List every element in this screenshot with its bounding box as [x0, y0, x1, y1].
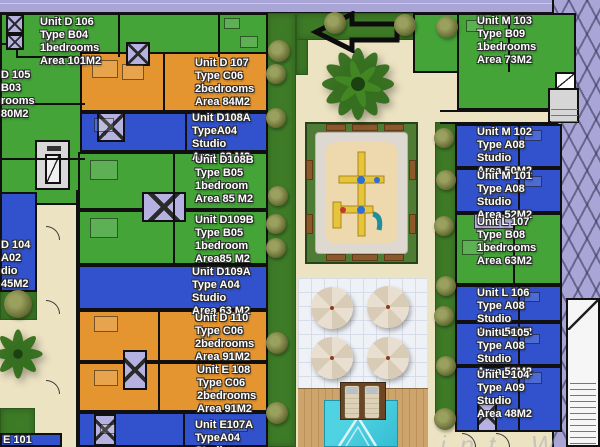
lounger-icon — [364, 385, 380, 419]
palm-tree-icon — [320, 46, 396, 122]
bush-icon — [266, 402, 288, 424]
unit-label-d106: Unit D 106Type B041bedroomsArea 101M2 — [40, 16, 101, 68]
stair-treads — [570, 378, 596, 444]
door-arc — [46, 380, 60, 394]
elevator-shaft-icon — [126, 42, 150, 66]
furniture — [90, 218, 118, 238]
bush-icon — [268, 186, 288, 206]
bush-icon — [436, 276, 456, 296]
bench — [409, 214, 416, 234]
bench — [384, 124, 404, 131]
wall — [218, 13, 220, 57]
left-arrow-icon — [310, 11, 402, 53]
bush-icon — [394, 14, 416, 36]
elevator-shaft-icon — [123, 350, 147, 390]
unit-label-m101: Unit M 101Type A08StudioArea 52M2 — [477, 170, 532, 222]
furniture — [240, 36, 258, 48]
palm-tree-icon — [0, 328, 44, 380]
bush-icon — [324, 12, 346, 34]
door-arc — [46, 300, 60, 314]
lounger-icon — [344, 385, 360, 419]
stair-diagonal — [568, 300, 598, 330]
wall — [183, 412, 185, 447]
elevator-shaft-icon — [6, 14, 24, 34]
wall — [76, 190, 78, 447]
wall — [118, 13, 120, 57]
furniture — [224, 18, 240, 29]
elevator-shaft-icon — [6, 34, 24, 50]
door-arc — [46, 226, 60, 240]
bush-icon — [268, 40, 290, 62]
furniture — [90, 160, 118, 180]
bush-icon — [434, 306, 454, 326]
bush-icon — [436, 16, 458, 38]
bush-icon — [436, 356, 456, 376]
bench — [306, 160, 313, 180]
bench — [326, 124, 346, 131]
bench — [384, 254, 404, 261]
furniture — [122, 64, 144, 80]
road-stripe — [0, 3, 600, 4]
road-band — [0, 0, 600, 14]
unit-label-e108: Unit E 108Type C062bedroomsArea 91M2 — [197, 364, 256, 416]
unit-label-d109b: Unit D109BType B051bedroomArea85 M2 — [195, 214, 254, 266]
bush-icon — [434, 128, 454, 148]
wall — [0, 158, 85, 160]
bush-icon — [4, 290, 32, 318]
bush-icon — [266, 108, 286, 128]
bush-icon — [266, 64, 286, 84]
unit-label-d110: Unit D 110Type C062bedroomsArea 91M2 — [195, 312, 254, 364]
bench — [352, 124, 378, 131]
bush-icon — [434, 408, 456, 430]
unit-label-e101: E 101 — [3, 434, 32, 447]
wall — [158, 310, 160, 412]
unit-label-d104: D 104A02dio45M2 — [1, 239, 30, 291]
wall — [173, 152, 175, 265]
furniture — [100, 424, 116, 434]
stairwell-right-top — [548, 88, 579, 123]
wall — [163, 52, 165, 112]
stair-bar — [47, 146, 61, 151]
unit-label-d108b: Unit D108BType B051bedroomArea 85 M2 — [195, 154, 254, 206]
furniture — [94, 370, 118, 386]
furniture — [94, 316, 118, 332]
umbrella-icon — [311, 337, 353, 379]
unit-label-d109a: Unit D109AType A04StudioArea 63 M2 — [192, 266, 251, 318]
bench — [326, 254, 346, 261]
umbrella-icon — [311, 287, 353, 329]
umbrella-icon — [367, 337, 409, 379]
bush-icon — [434, 216, 454, 236]
lobby-passage — [440, 110, 558, 124]
unit-label-m103: Unit M 103Type B091bedroomsArea 73M2 — [477, 15, 536, 67]
bush-icon — [266, 214, 286, 234]
bush-icon — [436, 170, 456, 190]
unit-label-e107a: Unit E107ATypeA04Studio — [195, 419, 253, 447]
unit-label-d105: D 105B03rooms80M2 — [1, 69, 35, 121]
stairwell-right-bottom — [566, 298, 600, 447]
bush-icon — [266, 238, 286, 258]
wall — [185, 112, 187, 152]
bench — [352, 254, 378, 261]
site-plan: Unit D 106Type B041bedroomsArea 101M2 D … — [0, 0, 600, 447]
bush-icon — [266, 332, 288, 354]
elevator-shaft-icon — [142, 192, 186, 222]
umbrella-icon — [367, 286, 409, 328]
stair-treads — [551, 104, 578, 122]
stairwell-left — [35, 140, 70, 190]
unit-label-l104: Unit L 104Type A09StudioArea 48M2 — [477, 369, 532, 421]
watermark: int W — [440, 430, 569, 447]
furniture — [94, 118, 114, 132]
unit-label-d107: Unit D 107Type C062bedroomsArea 84M2 — [195, 57, 254, 109]
unit-label-l107: Unit L 107Type B081bedroomsArea 63M2 — [477, 216, 536, 268]
bench — [409, 160, 416, 180]
bench — [306, 214, 313, 234]
play-structure-icon — [331, 150, 392, 238]
